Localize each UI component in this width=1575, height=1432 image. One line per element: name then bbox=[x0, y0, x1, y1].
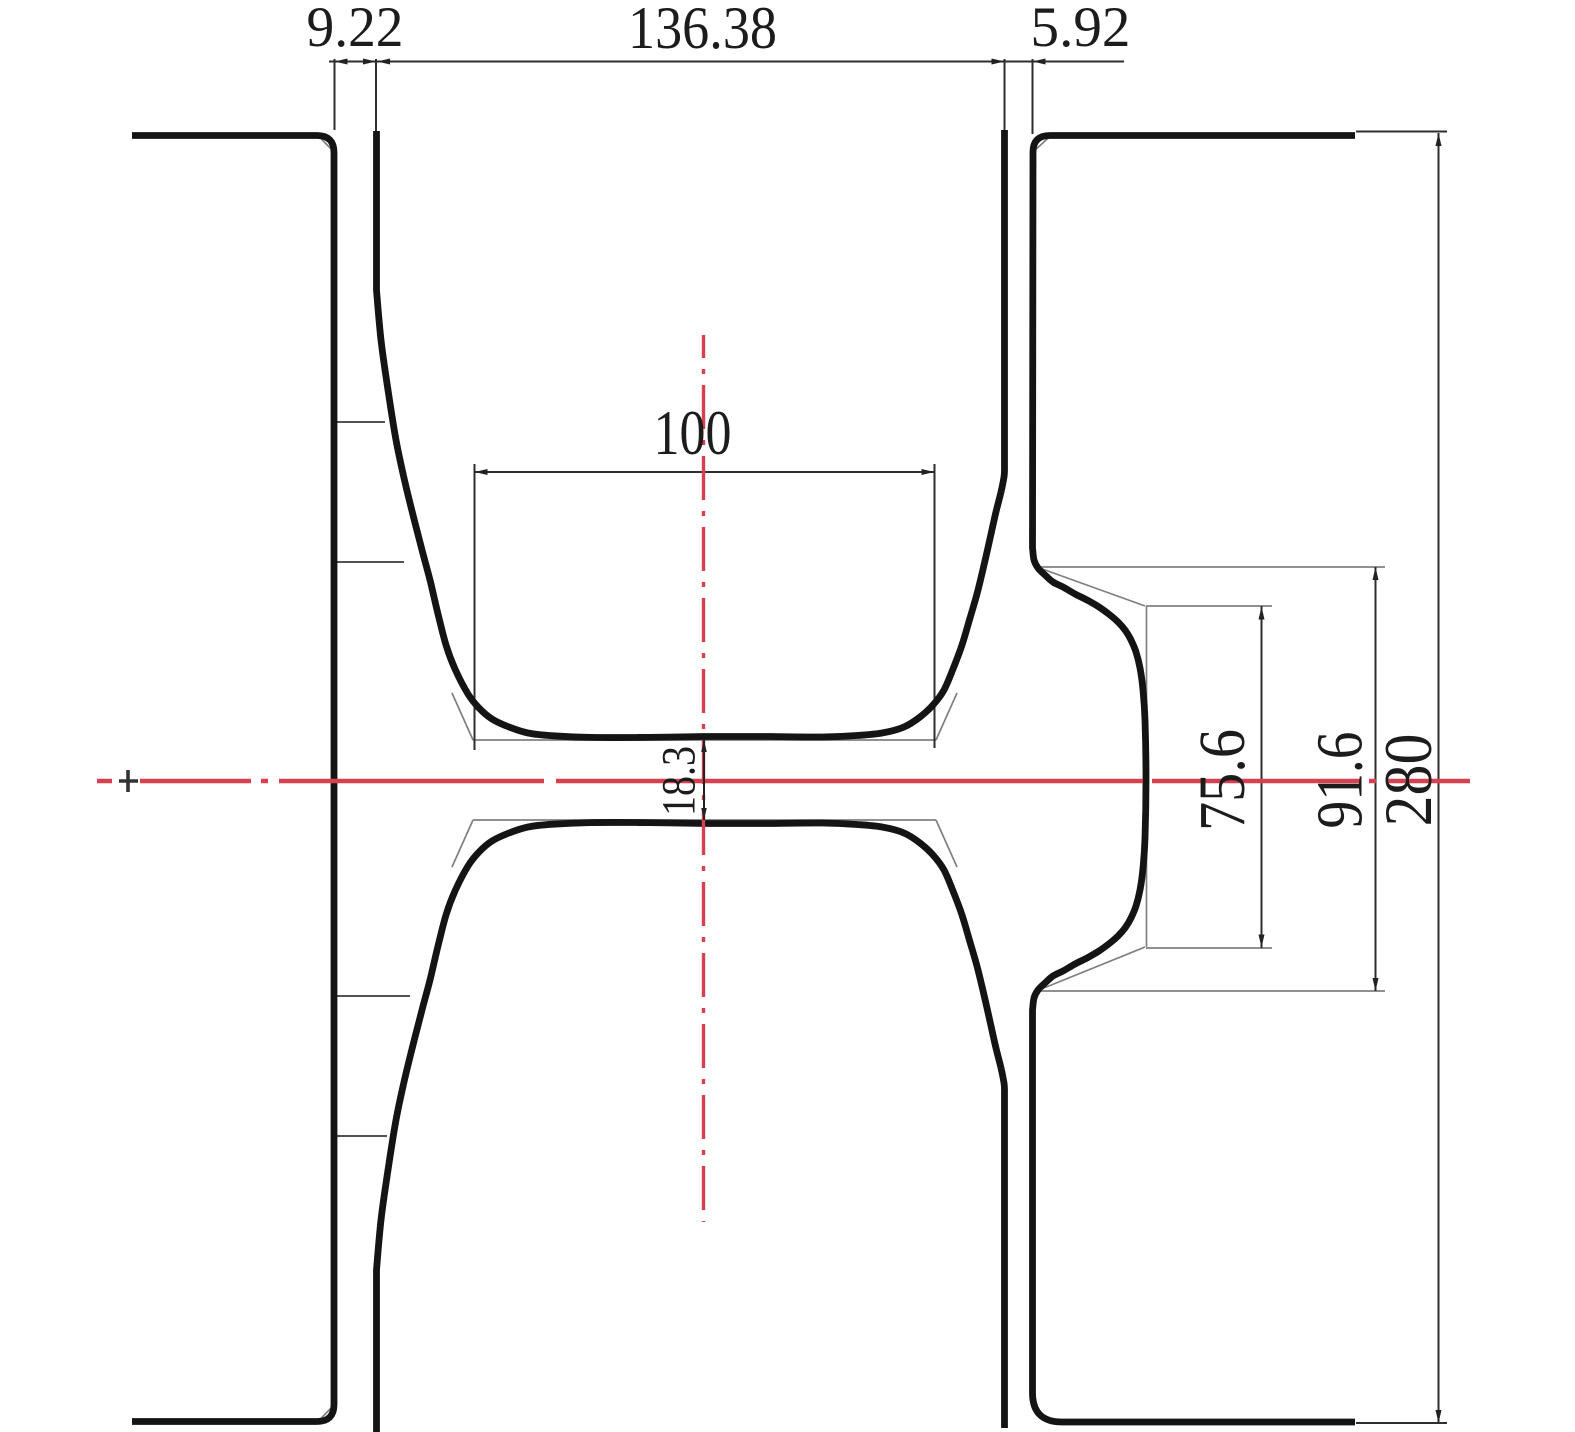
svg-text:9.22: 9.22 bbox=[307, 0, 404, 59]
svg-text:5.92: 5.92 bbox=[1031, 0, 1131, 59]
svg-text:280: 280 bbox=[1370, 734, 1446, 827]
svg-text:75.6: 75.6 bbox=[1186, 729, 1259, 831]
svg-text:91.6: 91.6 bbox=[1304, 732, 1377, 829]
svg-text:136.38: 136.38 bbox=[628, 0, 777, 61]
svg-text:100: 100 bbox=[654, 398, 732, 468]
svg-text:18.3: 18.3 bbox=[653, 746, 706, 816]
